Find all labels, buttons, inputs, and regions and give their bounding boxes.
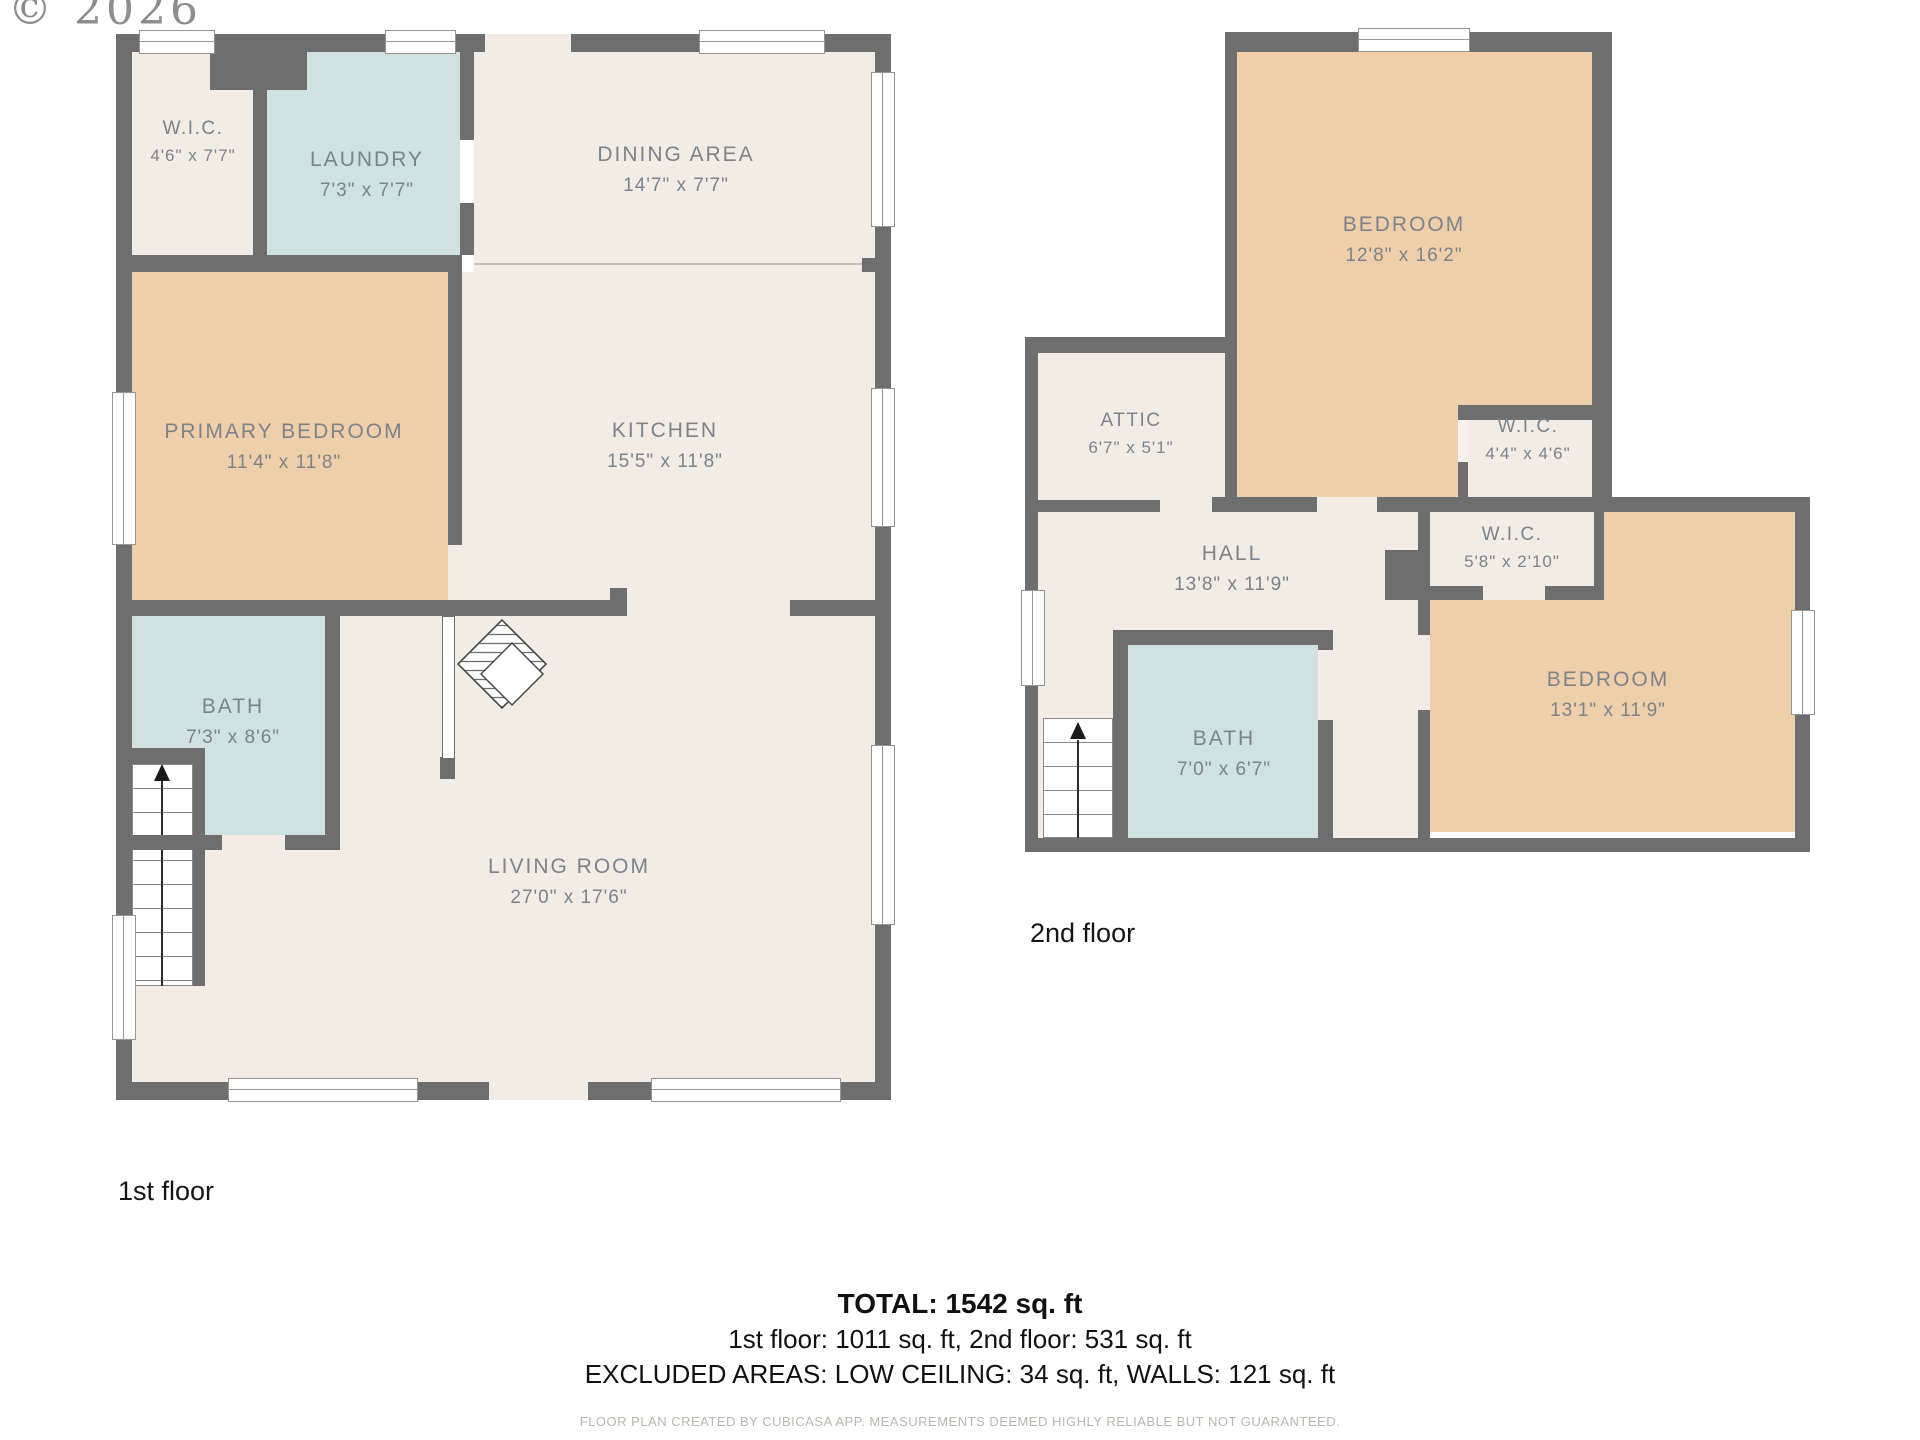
total-area: TOTAL: 1542 sq. ft xyxy=(0,1288,1920,1320)
disclaimer: FLOOR PLAN CREATED BY CUBICASA APP. MEAS… xyxy=(0,1414,1920,1429)
room-name: W.I.C. xyxy=(150,118,235,140)
room-label-wic58: W.I.C. 5'8" x 2'10" xyxy=(1464,524,1560,572)
room-label-bedroom1: BEDROOM 12'8" x 16'2" xyxy=(1343,213,1466,267)
room-dimensions: 5'8" x 2'10" xyxy=(1464,552,1560,572)
room-label-hall: HALL 13'8" x 11'9" xyxy=(1174,542,1290,596)
room-label-kitchen: KITCHEN 15'5" x 11'8" xyxy=(607,419,723,473)
wall xyxy=(1113,630,1128,838)
room-name: W.I.C. xyxy=(1464,524,1560,546)
room-label-wic: W.I.C. 4'6" x 7'7" xyxy=(150,118,235,166)
wall xyxy=(285,835,340,850)
room-name: DINING AREA xyxy=(597,143,754,167)
door-opening-bottom xyxy=(489,1082,588,1100)
wall xyxy=(1418,710,1430,847)
room-label-laundry: LAUNDRY 7'3" x 7'7" xyxy=(310,148,424,202)
room-label-living: LIVING ROOM 27'0" x 17'6" xyxy=(488,855,650,909)
room-dimensions: 6'7" x 5'1" xyxy=(1088,438,1173,458)
window xyxy=(1358,28,1470,52)
wall xyxy=(1212,497,1317,512)
wall xyxy=(1545,586,1594,600)
wall xyxy=(460,52,474,140)
wall xyxy=(1592,32,1612,505)
room-label-bedroom2: BEDROOM 13'1" x 11'9" xyxy=(1547,668,1670,722)
kitchen-living-opening xyxy=(627,600,790,616)
wall xyxy=(790,600,875,616)
wall xyxy=(1025,838,1810,852)
window xyxy=(699,30,825,54)
door-opening-wic44 xyxy=(1458,420,1468,462)
wall xyxy=(1318,720,1333,838)
room-dimensions: 12'8" x 16'2" xyxy=(1343,245,1466,267)
wall xyxy=(448,272,462,545)
wall xyxy=(1025,337,1237,353)
wall xyxy=(253,52,267,255)
room-label-wic44: W.I.C. 4'4" x 4'6" xyxy=(1485,416,1570,464)
room-label-primary-bedroom: PRIMARY BEDROOM 11'4" x 11'8" xyxy=(164,420,403,474)
room-name: LAUNDRY xyxy=(310,148,424,172)
stairs-up-arrow-icon xyxy=(1070,722,1086,739)
excluded-areas: EXCLUDED AREAS: LOW CEILING: 34 sq. ft, … xyxy=(0,1359,1920,1390)
window xyxy=(871,72,895,227)
first-floor-caption: 1st floor xyxy=(118,1176,214,1207)
room-name: HALL xyxy=(1174,542,1290,566)
room-label-bath: BATH 7'3" x 8'6" xyxy=(186,695,280,749)
window xyxy=(1021,590,1045,686)
window xyxy=(228,1078,418,1102)
room-dimensions: 7'3" x 8'6" xyxy=(186,727,280,749)
dining-kitchen-boundary xyxy=(474,263,862,265)
floor-areas: 1st floor: 1011 sq. ft, 2nd floor: 531 s… xyxy=(0,1324,1920,1355)
wall xyxy=(1418,600,1430,635)
wall xyxy=(1025,500,1160,512)
wall xyxy=(1418,586,1483,600)
door-opening-attic-hall xyxy=(1160,500,1212,512)
wall xyxy=(460,203,474,255)
room-name: KITCHEN xyxy=(607,419,723,443)
room-dimensions: 11'4" x 11'8" xyxy=(164,452,403,474)
wall xyxy=(1225,32,1237,500)
room-dimensions: 7'0" x 6'7" xyxy=(1177,759,1271,781)
room-label-bath2: BATH 7'0" x 6'7" xyxy=(1177,727,1271,781)
stairs-up-arrow-icon xyxy=(154,764,170,781)
door-opening-bedroom2-hall xyxy=(1418,635,1430,710)
room-name: ATTIC xyxy=(1088,410,1173,432)
chimney-stub-wall xyxy=(440,757,455,779)
stairs-arrow-shaft xyxy=(161,780,163,986)
window xyxy=(112,915,136,1040)
room-name: BATH xyxy=(186,695,280,719)
wall xyxy=(1318,630,1333,650)
wall xyxy=(862,258,875,272)
window xyxy=(871,745,895,925)
room-dimensions: 4'4" x 4'6" xyxy=(1485,444,1570,464)
primary-bedroom-door-opening xyxy=(448,545,462,600)
door-opening-top xyxy=(485,34,571,52)
window xyxy=(871,388,895,527)
window xyxy=(385,30,456,54)
room-dimensions: 13'8" x 11'9" xyxy=(1174,574,1290,596)
door-opening-bedroom1-hall xyxy=(1317,497,1377,512)
room-label-dining: DINING AREA 14'7" x 7'7" xyxy=(597,143,754,197)
wall xyxy=(610,588,627,600)
window xyxy=(112,392,136,545)
wall xyxy=(1418,512,1430,550)
room-dimensions: 4'6" x 7'7" xyxy=(150,146,235,166)
room-name: PRIMARY BEDROOM xyxy=(164,420,403,444)
window xyxy=(139,30,215,54)
fireplace-icon xyxy=(450,612,560,722)
window xyxy=(651,1078,841,1102)
wall xyxy=(193,764,205,986)
door-opening-wic58 xyxy=(1483,586,1545,600)
door-opening-bath2 xyxy=(1318,650,1333,720)
second-floor-caption: 2nd floor xyxy=(1030,918,1135,949)
room-dimensions: 7'3" x 7'7" xyxy=(310,180,424,202)
room-name: LIVING ROOM xyxy=(488,855,650,879)
wall xyxy=(1458,462,1468,500)
room-label-attic: ATTIC 6'7" x 5'1" xyxy=(1088,410,1173,458)
window xyxy=(1791,610,1815,715)
room-name: BEDROOM xyxy=(1343,213,1466,237)
room-name: BATH xyxy=(1177,727,1271,751)
wall xyxy=(116,835,222,850)
room-name: BEDROOM xyxy=(1547,668,1670,692)
wall xyxy=(116,748,205,764)
wall xyxy=(325,616,340,850)
room-dimensions: 15'5" x 11'8" xyxy=(607,451,723,473)
wall xyxy=(1113,630,1333,645)
room-dimensions: 14'7" x 7'7" xyxy=(597,175,754,197)
wall xyxy=(1377,497,1810,512)
area-summary: TOTAL: 1542 sq. ft 1st floor: 1011 sq. f… xyxy=(0,1288,1920,1429)
stairs-arrow-shaft xyxy=(1077,740,1079,838)
room-name: W.I.C. xyxy=(1485,416,1570,438)
wall xyxy=(1594,512,1604,600)
room-dimensions: 13'1" x 11'9" xyxy=(1547,700,1670,722)
room-dimensions: 27'0" x 17'6" xyxy=(488,887,650,909)
floor-plan-page: © 2026 xyxy=(0,0,1920,1440)
wall xyxy=(116,255,462,272)
